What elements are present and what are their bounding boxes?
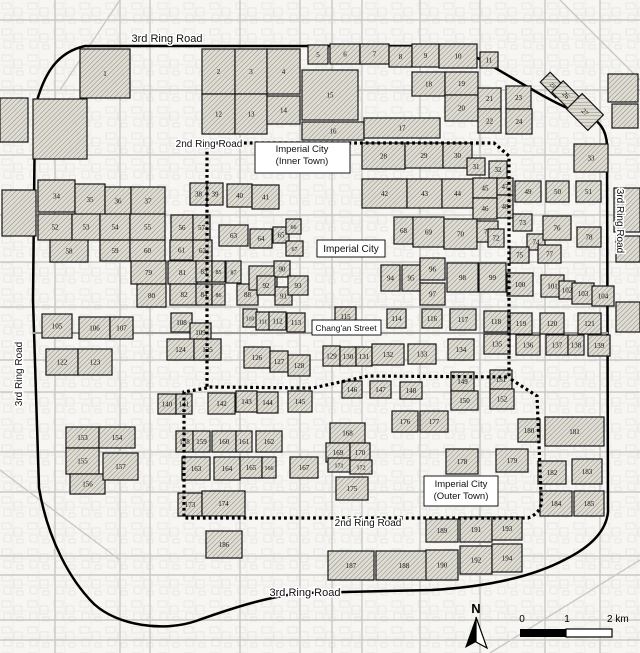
block-number: 41 bbox=[262, 193, 270, 201]
map-block-180: 180 bbox=[518, 419, 540, 442]
map-block-21: 21 bbox=[478, 88, 501, 109]
block-number: 130 bbox=[343, 353, 354, 361]
block-number: 134 bbox=[456, 346, 467, 354]
map-block-108: 108 bbox=[171, 313, 192, 332]
map-block-162: 162 bbox=[256, 431, 282, 452]
block-number: 166 bbox=[265, 466, 274, 472]
hatched-block bbox=[616, 302, 640, 332]
map-block-50: 50 bbox=[546, 181, 569, 202]
label-text: 2nd Ring Road bbox=[176, 139, 243, 150]
label-text: Imperial City bbox=[323, 244, 379, 255]
block-number: 24 bbox=[516, 118, 524, 126]
block-number: 59 bbox=[112, 247, 120, 255]
map-block-145: 145 bbox=[288, 391, 312, 412]
map-block-56: 56 bbox=[171, 215, 193, 240]
block-number: 173 bbox=[185, 501, 196, 509]
map-block-5: 5 bbox=[308, 45, 328, 64]
block-number: 103 bbox=[578, 290, 589, 298]
map-block-156: 156 bbox=[70, 474, 105, 494]
map-block-37: 37 bbox=[131, 187, 165, 215]
map-block-149: 149 bbox=[451, 372, 474, 391]
block-number: 4 bbox=[282, 68, 286, 76]
map-block-93: 93 bbox=[288, 276, 308, 295]
map-block-10: 10 bbox=[439, 44, 477, 68]
map-block-82: 82 bbox=[170, 284, 198, 305]
map-block-54: 54 bbox=[100, 214, 130, 240]
block-number: 162 bbox=[264, 438, 275, 446]
block-number: 66 bbox=[291, 225, 297, 231]
map-block-154: 154 bbox=[99, 427, 135, 448]
map-block-11: 11 bbox=[480, 52, 498, 68]
label-text: 3rd Ring Road bbox=[614, 189, 625, 253]
map-block-111: 111 bbox=[256, 312, 270, 330]
map-block-130: 130 bbox=[340, 347, 356, 366]
map-block-62: 62 bbox=[193, 240, 212, 261]
map-block-49: 49 bbox=[515, 181, 541, 202]
map-block-29: 29 bbox=[405, 143, 443, 168]
block-number: 46 bbox=[482, 205, 490, 213]
block-number: 37 bbox=[145, 197, 153, 205]
map-block-171: 171 bbox=[328, 458, 350, 472]
block-number: 99 bbox=[489, 274, 497, 282]
block-number: 70 bbox=[457, 230, 465, 238]
block-number: 157 bbox=[115, 463, 126, 471]
block-number: 187 bbox=[346, 562, 357, 570]
block-number: 64 bbox=[258, 235, 266, 243]
block-number: 122 bbox=[57, 358, 68, 366]
map-block-193: 193 bbox=[492, 517, 522, 540]
block-number: 80 bbox=[148, 292, 156, 300]
label-changan-street: Chang'an Street bbox=[312, 320, 381, 335]
block-number: 16 bbox=[330, 127, 338, 135]
block-number: 21 bbox=[486, 95, 494, 103]
map-block-15: 15 bbox=[302, 70, 358, 120]
block-number: 1 bbox=[103, 70, 107, 78]
map-block-24: 24 bbox=[506, 109, 532, 134]
block-number: 33 bbox=[588, 154, 596, 162]
map-block-28: 28 bbox=[362, 143, 405, 169]
block-number: 17 bbox=[399, 124, 407, 132]
label-inner-town: Imperial City(Inner Town) bbox=[255, 142, 350, 173]
map-block-181: 181 bbox=[545, 417, 604, 446]
map-block-134: 134 bbox=[448, 339, 474, 360]
map-block-17: 17 bbox=[364, 118, 440, 138]
block-number: 86 bbox=[216, 293, 222, 299]
map-block-41: 41 bbox=[252, 185, 279, 209]
map-block-19: 19 bbox=[445, 72, 478, 95]
map-block-79: 79 bbox=[131, 261, 166, 284]
block-number: 180 bbox=[524, 427, 535, 435]
block-number: 104 bbox=[598, 292, 609, 300]
map-block-157: 157 bbox=[103, 453, 138, 480]
map-block-104: 104 bbox=[592, 286, 614, 306]
block-number: 97 bbox=[429, 290, 437, 298]
map-block-188: 188 bbox=[376, 551, 432, 580]
map-block-45: 45 bbox=[473, 178, 497, 198]
map-block-7: 7 bbox=[360, 44, 389, 64]
block-number: 91 bbox=[280, 292, 288, 300]
map-block-148: 148 bbox=[400, 382, 422, 399]
map-block-174: 174 bbox=[202, 491, 245, 516]
map-block-144: 144 bbox=[257, 392, 278, 413]
label-imperial-city: Imperial City bbox=[317, 240, 385, 257]
block-number: 88 bbox=[244, 291, 252, 299]
label-text-line2: (Inner Town) bbox=[276, 156, 329, 167]
block-number: 153 bbox=[77, 434, 88, 442]
block-number: 12 bbox=[215, 110, 223, 118]
block-number: 129 bbox=[326, 352, 337, 360]
block-number: 82 bbox=[181, 291, 189, 299]
map-block-152: 152 bbox=[490, 389, 514, 409]
map-block-170: 170 bbox=[350, 443, 370, 462]
map-block-33: 33 bbox=[574, 144, 608, 172]
map-block-4: 4 bbox=[267, 49, 300, 94]
block-number: 34 bbox=[53, 192, 61, 200]
block-number: 188 bbox=[399, 562, 410, 570]
block-number: 55 bbox=[144, 223, 152, 231]
block-number: 69 bbox=[425, 228, 433, 236]
map-block-76: 76 bbox=[543, 216, 571, 240]
map-block-9: 9 bbox=[412, 44, 439, 67]
map-block-117: 117 bbox=[450, 309, 476, 330]
map-block-106: 106 bbox=[79, 317, 110, 339]
block-number: 92 bbox=[263, 282, 271, 290]
map-block-61: 61 bbox=[170, 240, 193, 260]
label-ring3-left: 3rd Ring Road3rd Ring Road bbox=[14, 342, 25, 406]
block-number: 145 bbox=[295, 398, 306, 406]
map-block-159: 159 bbox=[193, 431, 210, 452]
map-block-116: 116 bbox=[422, 309, 442, 328]
block-number: 78 bbox=[586, 233, 594, 241]
block-number: 23 bbox=[515, 94, 523, 102]
block-number: 112 bbox=[272, 317, 283, 325]
map-block-87: 87 bbox=[226, 261, 241, 283]
block-number: 154 bbox=[112, 434, 123, 442]
map-block-73: 73 bbox=[513, 214, 532, 231]
map-block-140: 140 bbox=[158, 394, 176, 414]
map-block-114: 114 bbox=[387, 309, 406, 328]
map-block-164: 164 bbox=[214, 457, 240, 480]
map-block-189: 189 bbox=[426, 519, 458, 542]
block-number: 77 bbox=[546, 250, 554, 258]
block-number: 5 bbox=[316, 51, 320, 59]
block-number: 144 bbox=[262, 399, 273, 407]
block-number: 191 bbox=[471, 526, 482, 534]
map-block-58: 58 bbox=[50, 240, 88, 262]
north-label: N bbox=[471, 601, 480, 616]
map-block-194: 194 bbox=[492, 544, 522, 572]
block-number: 35 bbox=[87, 196, 95, 204]
label-text: 3rd Ring Road bbox=[270, 587, 341, 599]
map-block-129: 129 bbox=[323, 346, 340, 366]
block-number: 96 bbox=[429, 265, 437, 273]
map-block-173: 173 bbox=[178, 493, 202, 516]
map-block-42: 42 bbox=[362, 179, 407, 208]
block-number: 161 bbox=[239, 438, 250, 446]
block-number: 160 bbox=[219, 438, 230, 446]
map-block-191: 191 bbox=[460, 517, 492, 542]
map-block-179: 179 bbox=[496, 449, 528, 472]
block-number: 29 bbox=[421, 152, 429, 160]
label-text: 3rd Ring Road bbox=[14, 342, 25, 406]
block-number: 182 bbox=[547, 469, 558, 477]
map-block-59: 59 bbox=[100, 240, 130, 261]
map-block-90: 90 bbox=[274, 261, 290, 277]
map-block-60: 60 bbox=[130, 240, 165, 261]
scale-tick-0: 0 bbox=[519, 614, 525, 625]
block-number: 152 bbox=[497, 395, 508, 403]
map-block-183: 183 bbox=[572, 459, 602, 484]
map-block-107: 107 bbox=[110, 317, 133, 339]
map-block-2: 2 bbox=[202, 49, 235, 94]
map-block-8: 8 bbox=[389, 46, 412, 67]
block-number: 155 bbox=[77, 457, 88, 465]
block-number: 22 bbox=[486, 117, 494, 125]
block-number: 43 bbox=[421, 190, 429, 198]
map-block-84: 84 bbox=[196, 284, 212, 305]
block-number: 75 bbox=[516, 251, 524, 259]
hatched-block bbox=[612, 104, 638, 128]
block-number: 19 bbox=[458, 80, 466, 88]
block-number: 137 bbox=[552, 341, 563, 349]
block-number: 30 bbox=[454, 152, 462, 160]
block-number: 40 bbox=[236, 192, 244, 200]
map-block-120: 120 bbox=[540, 313, 564, 334]
map-block-98: 98 bbox=[447, 263, 478, 292]
map-block-46: 46 bbox=[473, 198, 497, 219]
block-number: 113 bbox=[291, 319, 302, 327]
map-block-31: 31 bbox=[467, 158, 485, 175]
map-block-94: 94 bbox=[381, 265, 400, 291]
map-block-67: 67 bbox=[286, 241, 303, 256]
map-block-147: 147 bbox=[370, 381, 391, 398]
map-block-18: 18 bbox=[412, 72, 445, 96]
map-block-34: 34 bbox=[38, 180, 75, 212]
block-number: 172 bbox=[357, 465, 366, 471]
map-block-142: 142 bbox=[208, 393, 235, 414]
block-number: 171 bbox=[335, 463, 344, 469]
block-number: 76 bbox=[554, 224, 562, 232]
block-number: 9 bbox=[424, 52, 428, 60]
block-number: 95 bbox=[408, 274, 416, 282]
block-number: 139 bbox=[594, 342, 605, 350]
map-block-113: 113 bbox=[287, 313, 305, 332]
map-block-178: 178 bbox=[446, 449, 478, 474]
block-number: 58 bbox=[66, 247, 74, 255]
map-block-51: 51 bbox=[576, 181, 601, 202]
map-block-68: 68 bbox=[394, 217, 413, 244]
block-number: 117 bbox=[458, 316, 469, 324]
block-number: 123 bbox=[90, 358, 101, 366]
map-block-75: 75 bbox=[510, 247, 529, 263]
block-number: 85 bbox=[216, 270, 222, 276]
map-block-78: 78 bbox=[577, 227, 601, 247]
block-number: 56 bbox=[179, 224, 187, 232]
block-number: 72 bbox=[493, 234, 501, 242]
map-block-176: 176 bbox=[392, 411, 418, 432]
map-block-52: 52 bbox=[38, 214, 72, 240]
map-block-118: 118 bbox=[484, 311, 508, 332]
block-number: 128 bbox=[294, 362, 305, 370]
block-number: 110 bbox=[246, 316, 255, 322]
map-block-86: 86 bbox=[212, 284, 225, 305]
map-block-123: 123 bbox=[78, 349, 112, 375]
block-number: 147 bbox=[375, 386, 386, 394]
map-block-192: 192 bbox=[460, 546, 492, 574]
block-number: 159 bbox=[196, 438, 207, 446]
label-ring2-bottom: 2nd Ring Road2nd Ring Road bbox=[335, 518, 402, 529]
block-number: 93 bbox=[295, 282, 303, 290]
map-block-22: 22 bbox=[478, 109, 501, 133]
block-number: 39 bbox=[212, 190, 220, 198]
map-block-99: 99 bbox=[479, 263, 506, 292]
map-block-133: 133 bbox=[408, 344, 436, 364]
map-block-136: 136 bbox=[516, 335, 540, 355]
block-number: 168 bbox=[342, 429, 353, 437]
block-number: 87 bbox=[231, 270, 237, 276]
block-number: 170 bbox=[355, 449, 366, 457]
map-block-124: 124 bbox=[167, 339, 194, 360]
map-block-110: 110 bbox=[243, 309, 257, 327]
map-block-131: 131 bbox=[356, 347, 372, 366]
beijing-district-map: 1234567891011121314151617181920212223242… bbox=[0, 0, 640, 653]
map-block-155: 155 bbox=[66, 448, 99, 474]
map-block-161: 161 bbox=[236, 431, 252, 452]
block-number: 167 bbox=[299, 464, 310, 472]
block-number: 174 bbox=[218, 500, 229, 508]
block-number: 98 bbox=[459, 274, 467, 282]
block-number: 105 bbox=[52, 322, 63, 330]
block-number: 106 bbox=[89, 324, 100, 332]
block-number: 124 bbox=[175, 346, 186, 354]
block-number: 45 bbox=[482, 184, 490, 192]
block-number: 107 bbox=[116, 324, 127, 332]
block-number: 54 bbox=[112, 223, 120, 231]
label-ring3-right: 3rd Ring Road3rd Ring Road bbox=[614, 189, 625, 253]
block-number: 60 bbox=[144, 247, 152, 255]
block-number: 136 bbox=[523, 341, 534, 349]
block-number: 109 bbox=[195, 329, 206, 337]
map-block-122: 122 bbox=[46, 349, 78, 375]
block-number: 150 bbox=[459, 397, 470, 405]
block-number: 32 bbox=[495, 166, 503, 174]
map-block-190: 190 bbox=[426, 550, 458, 580]
block-number: 132 bbox=[383, 351, 394, 359]
block-number: 156 bbox=[82, 480, 93, 488]
label-text: 3rd Ring Road bbox=[132, 33, 203, 45]
block-number: 176 bbox=[400, 418, 411, 426]
block-number: 52 bbox=[52, 223, 60, 231]
block-number: 133 bbox=[417, 350, 428, 358]
block-number: 57 bbox=[198, 224, 206, 232]
map-block-47: 47 bbox=[497, 178, 513, 195]
map-block-103: 103 bbox=[572, 283, 594, 304]
map-block-126: 126 bbox=[244, 347, 270, 368]
map-block-163: 163 bbox=[182, 457, 210, 480]
label-text: 2nd Ring Road bbox=[335, 518, 402, 529]
map-block-112: 112 bbox=[269, 312, 286, 330]
map-block-119: 119 bbox=[510, 313, 532, 334]
block-number: 3 bbox=[249, 68, 253, 76]
map-block-132: 132 bbox=[372, 344, 404, 365]
block-number: 143 bbox=[241, 398, 252, 406]
hatched-block bbox=[608, 74, 638, 102]
scale-bar-white bbox=[566, 629, 612, 637]
block-number: 181 bbox=[569, 428, 580, 436]
block-number: 20 bbox=[458, 104, 466, 112]
hatched-block bbox=[0, 98, 28, 142]
block-number: 190 bbox=[437, 561, 448, 569]
map-block-85: 85 bbox=[212, 261, 225, 282]
block-number: 13 bbox=[248, 110, 256, 118]
map-block-81: 81 bbox=[168, 261, 197, 284]
block-number: 7 bbox=[373, 50, 377, 58]
block-number: 131 bbox=[359, 353, 370, 361]
block-number: 50 bbox=[554, 188, 562, 196]
map-block-146: 146 bbox=[342, 381, 362, 398]
map-block-66: 66 bbox=[286, 219, 301, 234]
map-block-32: 32 bbox=[489, 161, 507, 178]
map-block-177: 177 bbox=[420, 411, 448, 432]
block-number: 11 bbox=[486, 56, 493, 64]
block-number: 185 bbox=[584, 500, 595, 508]
map-block-55: 55 bbox=[130, 214, 165, 240]
map-block-138: 138 bbox=[568, 335, 584, 355]
block-number: 53 bbox=[83, 223, 91, 231]
block-number: 42 bbox=[381, 190, 389, 198]
map-block-96: 96 bbox=[420, 258, 445, 280]
map-block-16: 16 bbox=[302, 122, 364, 140]
map-block-53: 53 bbox=[72, 214, 100, 240]
map-block-168: 168 bbox=[330, 423, 365, 443]
block-number: 28 bbox=[380, 152, 388, 160]
map-block-36: 36 bbox=[105, 187, 131, 215]
block-number: 94 bbox=[387, 274, 395, 282]
map-block-139: 139 bbox=[588, 335, 610, 356]
hatched-block bbox=[2, 190, 36, 236]
map-block-127: 127 bbox=[270, 351, 288, 372]
block-number: 108 bbox=[176, 319, 187, 327]
map-block-175: 175 bbox=[336, 477, 368, 500]
label-text: Imperial City bbox=[276, 144, 329, 155]
block-number: 140 bbox=[162, 400, 173, 408]
block-number: 73 bbox=[519, 219, 527, 227]
scale-bar-black bbox=[520, 629, 566, 637]
label-ring3-top: 3rd Ring Road3rd Ring Road bbox=[132, 33, 203, 45]
map-block-1: 1 bbox=[80, 49, 130, 98]
block-number: 2 bbox=[217, 68, 221, 76]
block-number: 38 bbox=[195, 190, 203, 198]
map-block-166: 166 bbox=[262, 457, 276, 478]
map-block-39: 39 bbox=[207, 183, 223, 205]
block-number: 127 bbox=[274, 358, 285, 366]
block-number: 90 bbox=[279, 265, 287, 273]
map-block-6: 6 bbox=[330, 44, 360, 64]
block-number: 116 bbox=[427, 315, 438, 323]
map-block-13: 13 bbox=[235, 94, 267, 134]
block-number: 165 bbox=[246, 464, 257, 472]
scale-tick-1: 1 bbox=[564, 614, 570, 625]
block-number: 8 bbox=[399, 53, 403, 61]
map-block-95: 95 bbox=[402, 265, 420, 291]
block-number: 135 bbox=[492, 340, 503, 348]
map-block-187: 187 bbox=[328, 551, 374, 580]
block-number: 189 bbox=[437, 527, 448, 535]
map-block-38: 38 bbox=[190, 183, 207, 205]
map-block-128: 128 bbox=[288, 355, 310, 376]
block-number: 65 bbox=[278, 231, 286, 239]
label-text-line2: (Outer Town) bbox=[434, 491, 489, 502]
